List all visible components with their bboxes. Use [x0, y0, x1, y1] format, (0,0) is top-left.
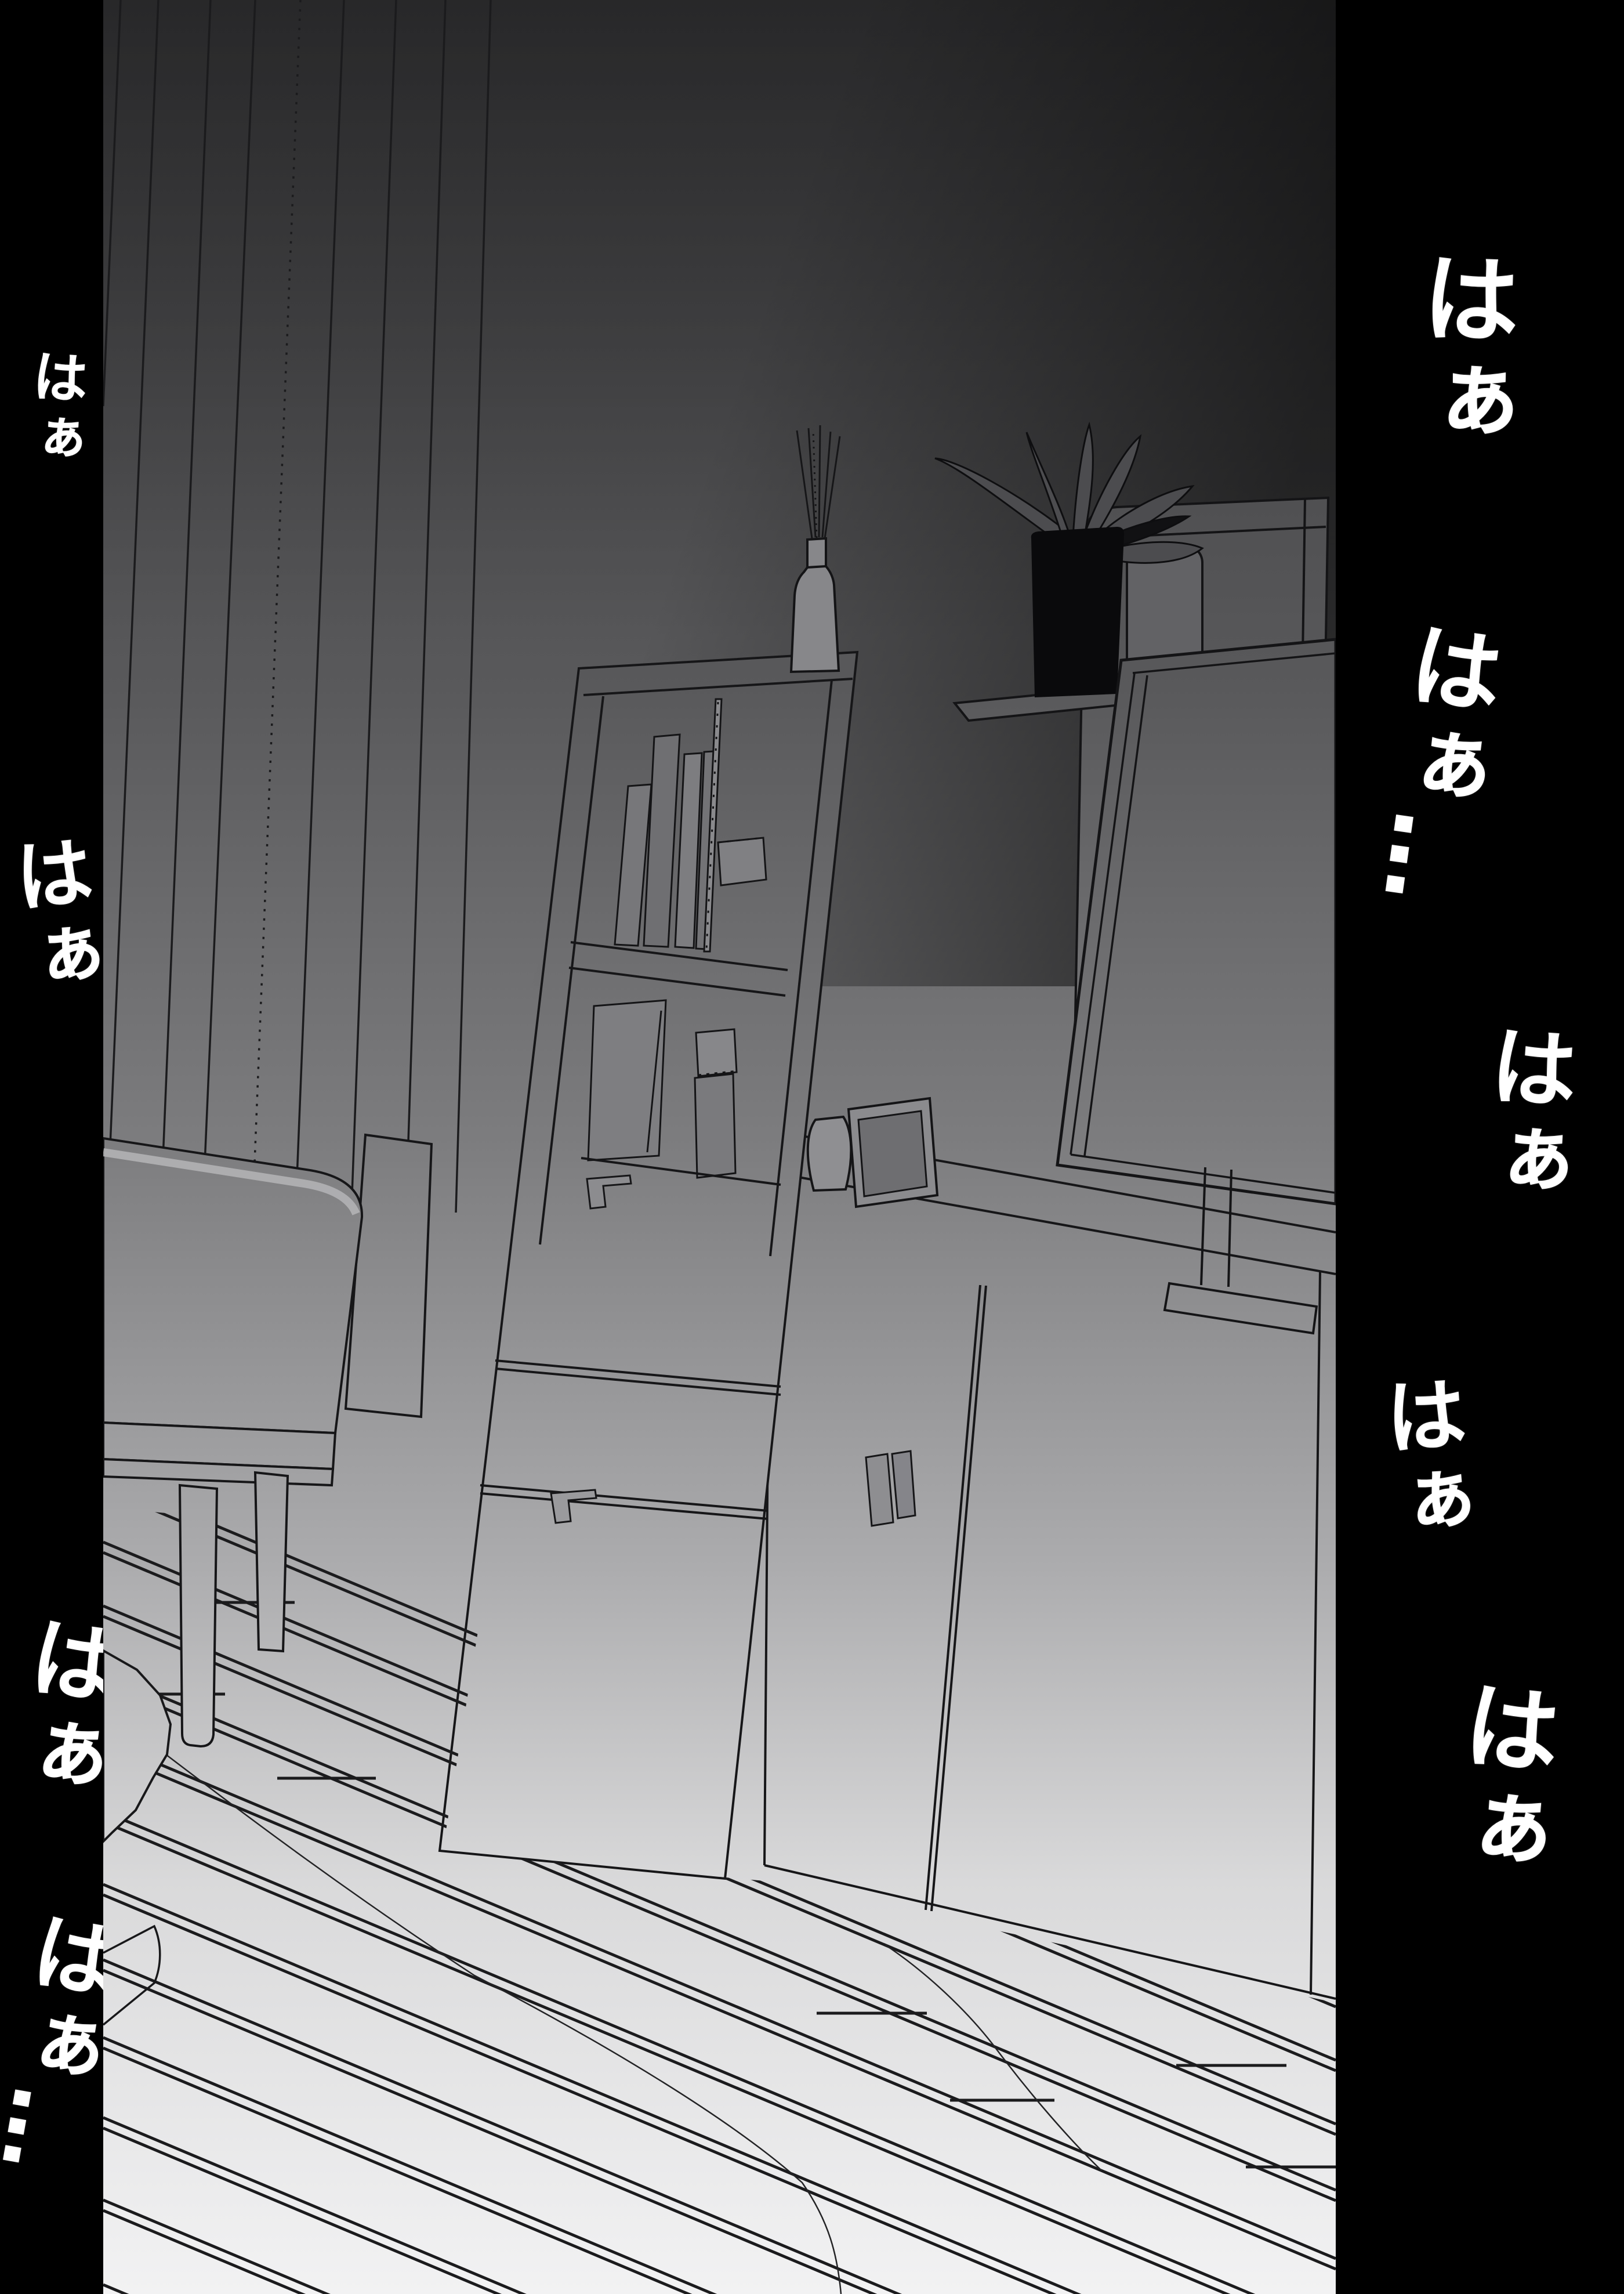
sideboard: [764, 1130, 1336, 1999]
picture-frame: [849, 1098, 937, 1207]
sfx-sigh: はぁ: [1375, 1371, 1468, 1548]
right-black-bar: はぁ はぁ… はぁ はぁ はぁ: [1336, 0, 1624, 2294]
sfx-sigh: はぁ…: [0, 1905, 118, 2183]
sfx-sigh: はぁ: [1409, 247, 1513, 454]
sfx-sigh: はぁ: [3, 1609, 117, 1805]
plant-pot-silhouette: [1031, 527, 1124, 697]
door-handle: [866, 1454, 893, 1526]
sfx-sigh: はぁ: [5, 831, 99, 1003]
sfx-sigh: はぁ: [21, 346, 85, 471]
room-illustration: [103, 0, 1336, 2294]
sfx-sigh: はぁ: [1440, 1673, 1556, 1883]
sfx-sigh: はぁ: [1473, 1019, 1573, 1208]
sofa-backrest: [103, 1138, 362, 1433]
vase: [808, 1117, 851, 1191]
small-box: [718, 838, 766, 885]
manga-page: はぁ はぁ はぁ はぁ…: [0, 0, 1624, 2294]
left-black-bar: はぁ はぁ はぁ はぁ…: [0, 0, 103, 2294]
sfx-sigh: はぁ…: [1369, 614, 1500, 913]
